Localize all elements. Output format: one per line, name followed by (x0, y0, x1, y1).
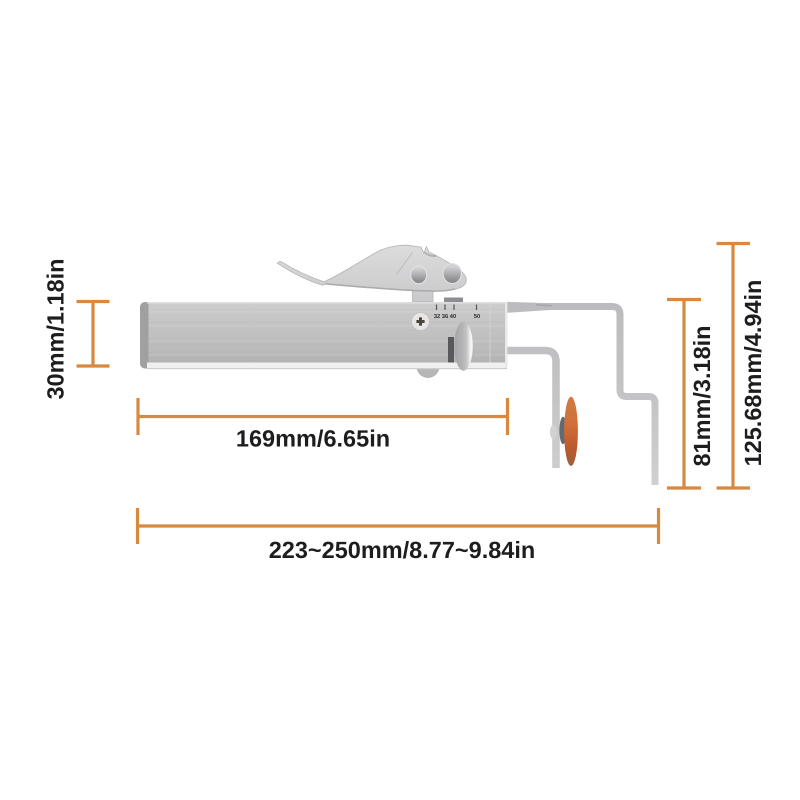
svg-text:50: 50 (474, 314, 480, 320)
svg-text:30mm/1.18in: 30mm/1.18in (43, 258, 69, 399)
svg-text:169mm/6.65in: 169mm/6.65in (236, 426, 390, 452)
svg-text:223~250mm/8.77~9.84in: 223~250mm/8.77~9.84in (269, 537, 536, 563)
svg-text:81mm/3.18in: 81mm/3.18in (689, 325, 715, 466)
svg-text:125.68mm/4.94in: 125.68mm/4.94in (740, 280, 766, 467)
svg-text:32 36 40: 32 36 40 (434, 314, 456, 320)
